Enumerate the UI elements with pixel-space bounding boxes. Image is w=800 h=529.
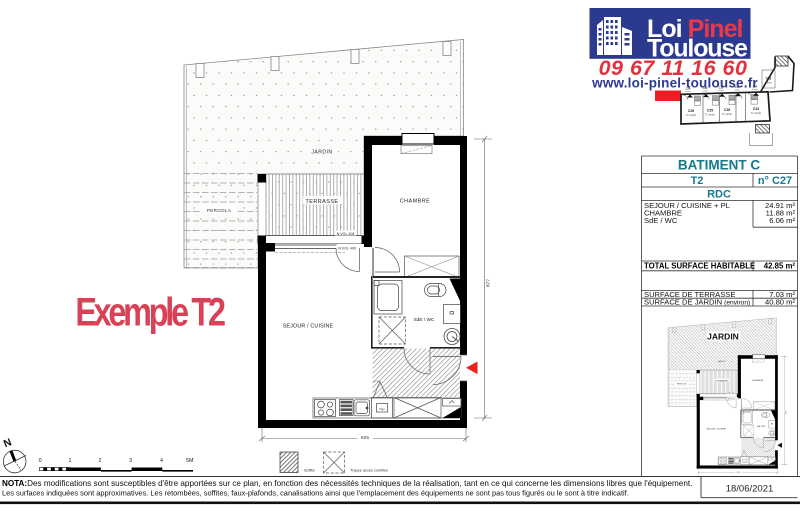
svg-text:Trappe accès combles: Trappe accès combles — [350, 469, 388, 473]
svg-text:T2: T2 — [691, 175, 704, 187]
svg-text:T3 Jardin: T3 Jardin — [751, 112, 762, 115]
svg-text:Jardin: Jardin — [718, 89, 725, 92]
svg-text:SdE / WC: SdE / WC — [413, 317, 435, 323]
svg-text:877: 877 — [486, 279, 492, 287]
svg-text:PERGOLA: PERGOLA — [207, 208, 232, 213]
svg-text:JARDIN: JARDIN — [707, 332, 739, 342]
svg-text:n° C27: n° C27 — [758, 175, 792, 187]
svg-text:Jardin: Jardin — [685, 90, 692, 93]
svg-text:0: 0 — [39, 458, 42, 464]
svg-text:42.85 m²: 42.85 m² — [764, 262, 796, 271]
svg-text:3: 3 — [129, 458, 132, 464]
svg-text:RDC: RDC — [707, 189, 731, 201]
svg-text:N:VOL 408: N:VOL 408 — [337, 232, 355, 236]
svg-text:4: 4 — [160, 458, 163, 464]
svg-text:Jardin: Jardin — [752, 88, 759, 91]
svg-text:Jardin: Jardin — [765, 82, 772, 85]
svg-text:T2 Jardin: T2 Jardin — [722, 113, 733, 116]
svg-text:T2 Jardin: T2 Jardin — [686, 114, 697, 117]
svg-text:SURFACE DE JARDIN (environ): SURFACE DE JARDIN (environ) — [644, 298, 750, 307]
svg-text:C32: C32 — [766, 77, 772, 81]
svg-text:5M: 5M — [186, 458, 194, 464]
svg-text:C28: C28 — [724, 108, 730, 112]
svg-text:Soffite: Soffite — [304, 469, 315, 473]
svg-text:frigo: frigo — [379, 407, 385, 411]
svg-text:Jardin: Jardin — [734, 89, 741, 92]
svg-text:2: 2 — [99, 458, 102, 464]
svg-text:C26: C26 — [688, 109, 694, 113]
svg-text:www.loi-pinel-toulouse.fr: www.loi-pinel-toulouse.fr — [591, 76, 758, 91]
svg-text:JARDIN: JARDIN — [311, 150, 332, 156]
svg-text:40.80 m²: 40.80 m² — [765, 298, 795, 307]
svg-text:N: N — [2, 436, 14, 450]
svg-text:SdE / WC: SdE / WC — [644, 216, 678, 225]
svg-text:CHAMBRE: CHAMBRE — [400, 199, 430, 205]
svg-text:N:VOL 400: N:VOL 400 — [338, 247, 356, 251]
svg-text:18/06/2021: 18/06/2021 — [726, 484, 774, 495]
svg-text:BATIMENT C: BATIMENT C — [678, 158, 760, 173]
svg-text:Jardin: Jardin — [702, 90, 709, 93]
svg-text:625: 625 — [361, 435, 369, 441]
svg-text:TOTAL SURFACE HABITABLE: TOTAL SURFACE HABITABLE — [644, 262, 755, 271]
svg-text:NOTA:Des modifications sont su: NOTA:Des modifications sont susceptibles… — [2, 479, 692, 488]
svg-text:C25: C25 — [707, 108, 713, 112]
svg-text:6.06 m²: 6.06 m² — [769, 216, 795, 225]
svg-text:TERRASSE: TERRASSE — [305, 199, 338, 205]
svg-text:Les surfaces indiquées sont ap: Les surfaces indiquées sont approximativ… — [2, 489, 629, 498]
svg-text:C33: C33 — [753, 107, 759, 111]
svg-text:Exemple T2: Exemple T2 — [75, 289, 226, 334]
svg-text:SEJOUR / CUISINE: SEJOUR / CUISINE — [283, 324, 334, 330]
svg-text:1: 1 — [69, 458, 72, 464]
svg-text:T2 Jardin: T2 Jardin — [705, 113, 716, 116]
